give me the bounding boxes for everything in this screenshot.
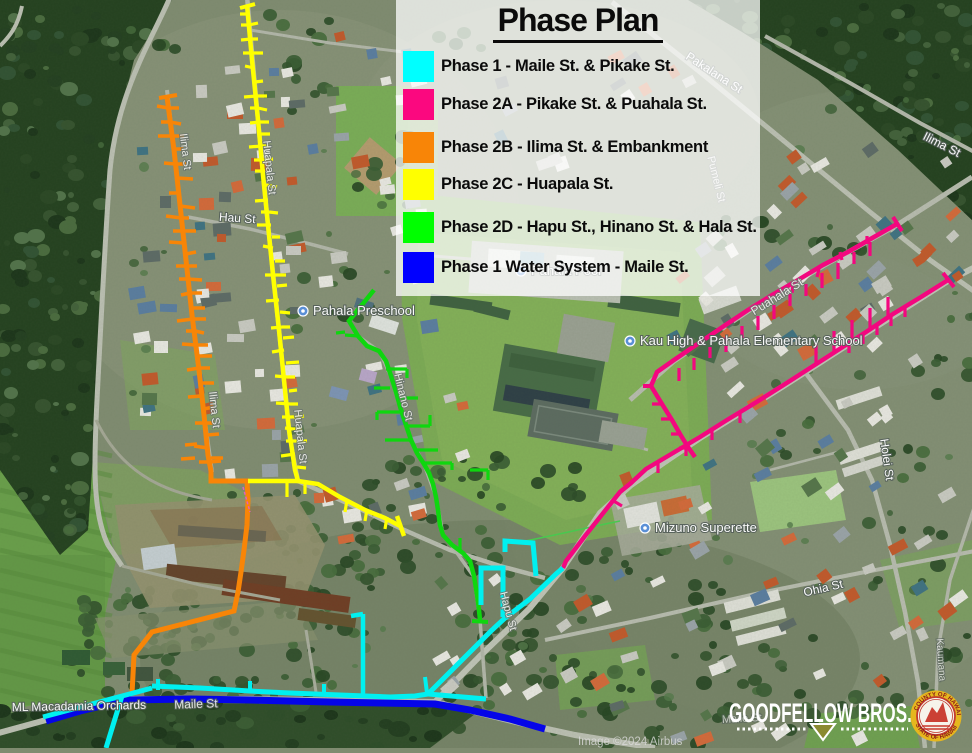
svg-text:COUNTY OF HAWAII: COUNTY OF HAWAII [0,0,961,716]
